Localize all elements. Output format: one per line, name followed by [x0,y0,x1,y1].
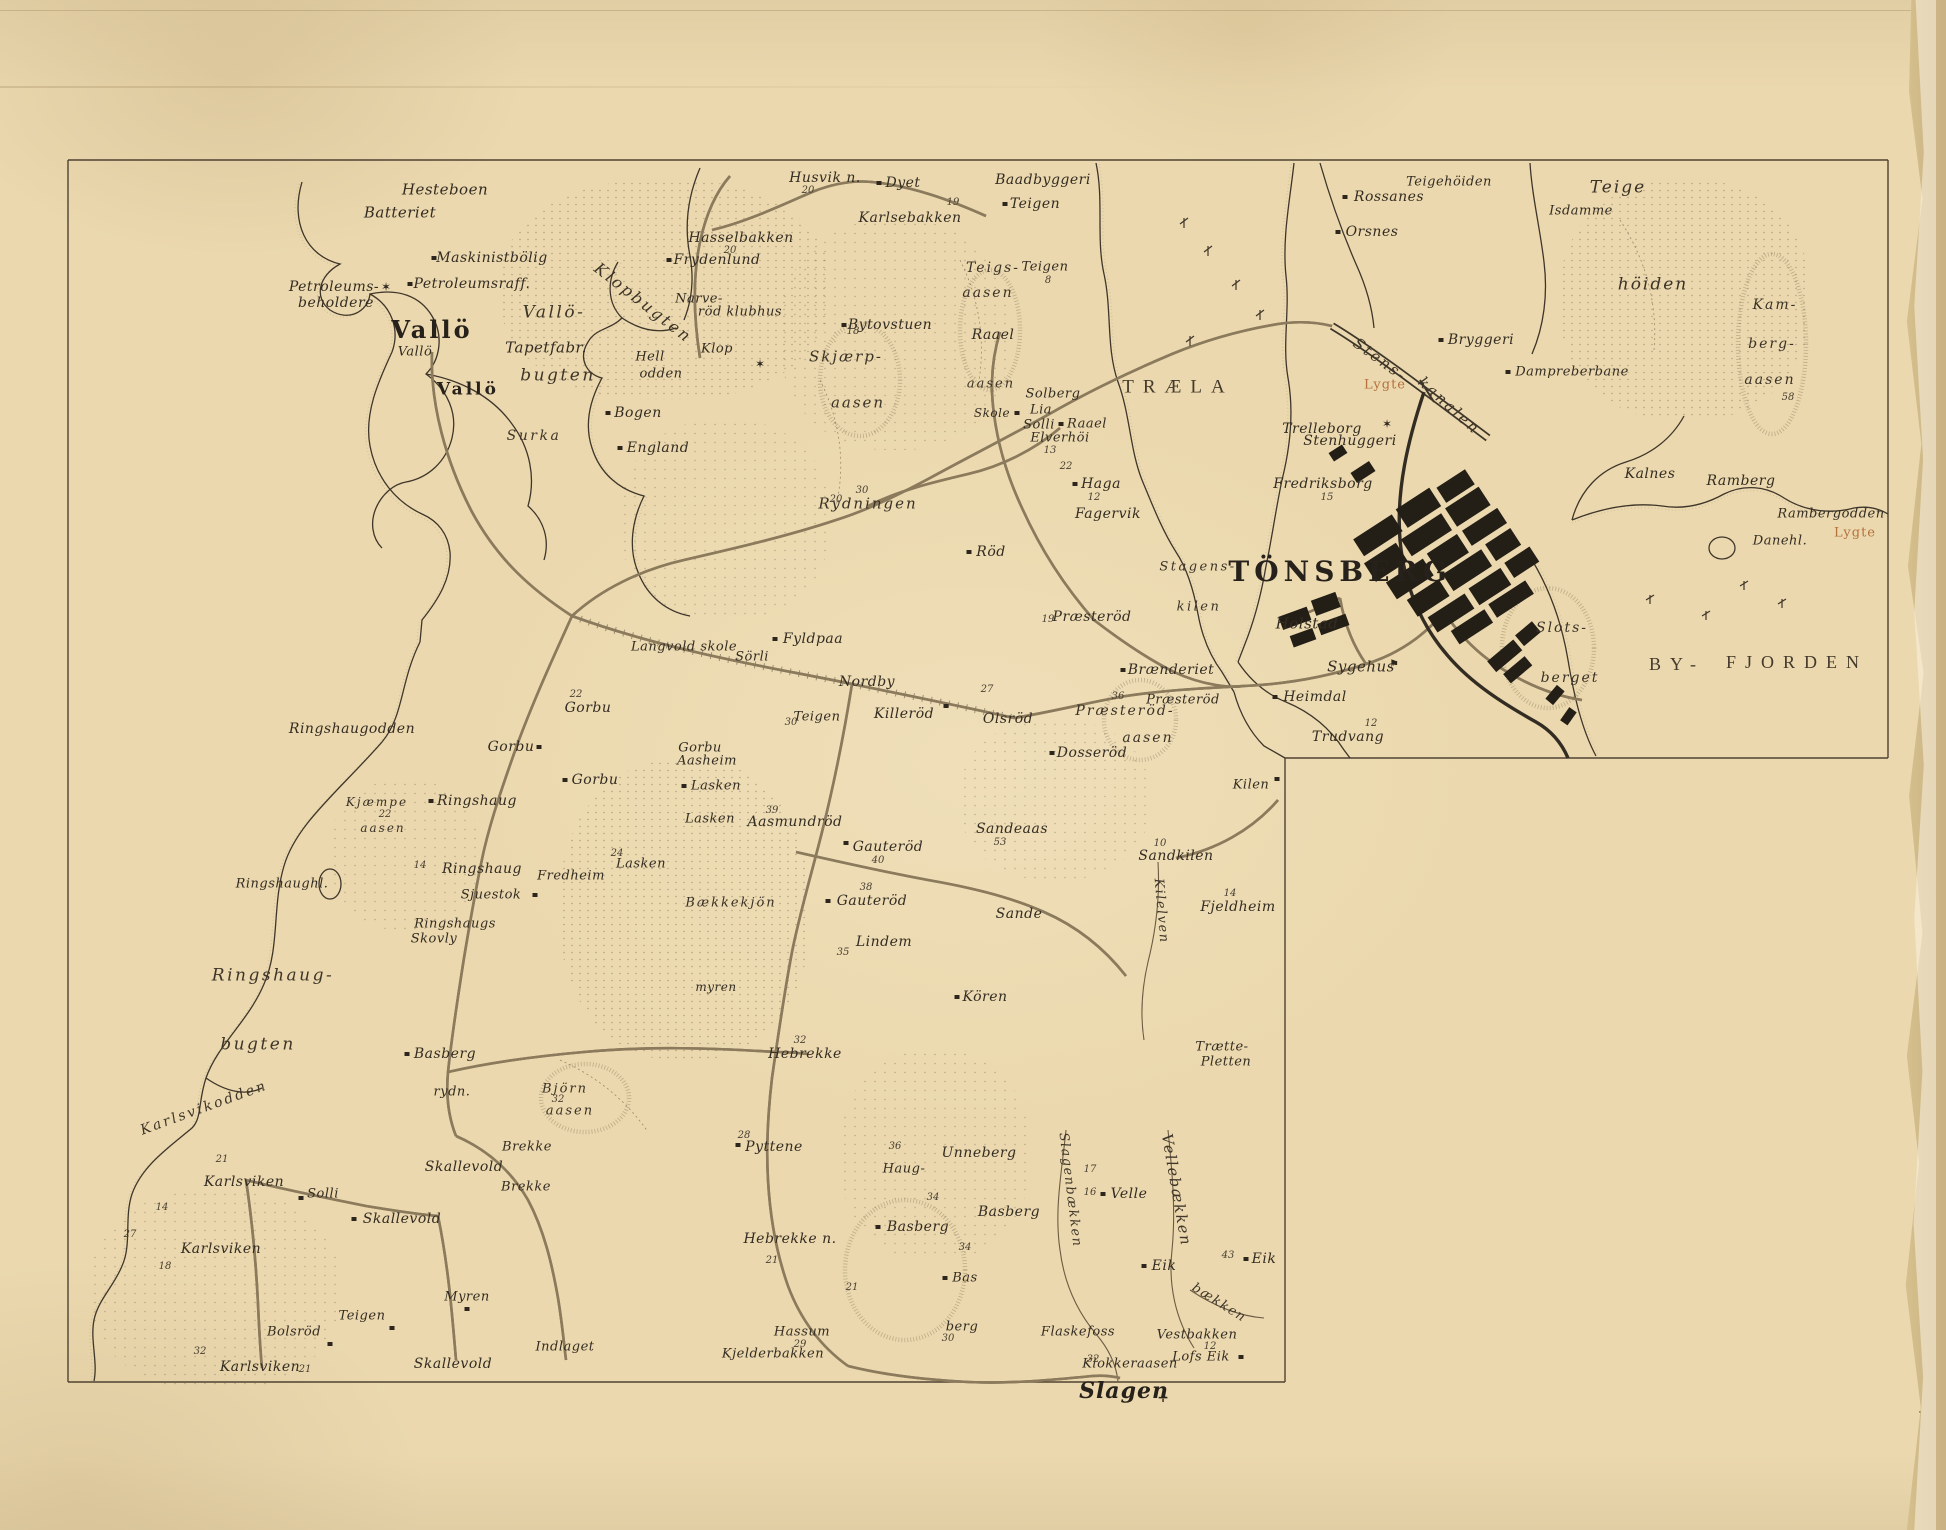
map-label: 10 [1154,839,1167,849]
building-symbol [429,799,434,803]
building-symbol [736,1143,741,1147]
building-symbol [390,1326,395,1330]
map-label: Ringshaug- [212,968,334,985]
map-label: Aasheim [677,755,737,768]
building-symbol [1142,1264,1147,1268]
map-label: Trudvang [1312,730,1384,744]
map-label: myren [695,981,736,993]
map-label: 36 [1112,692,1125,702]
map-label: aasen [831,396,885,411]
map-label: Ramberg [1707,474,1776,488]
map-label: aasen [1744,373,1795,387]
map-label: 12 [1088,493,1101,503]
map-label: FJORDEN [1726,653,1868,671]
building-symbol [1059,422,1064,426]
building-symbol [876,1225,881,1229]
building-symbol [955,995,960,999]
building-symbol [943,1276,948,1280]
map-label: ✶ [755,358,765,370]
map-label: 27 [981,685,994,695]
map-label: Bolsröd [267,1326,321,1339]
map-label: aasen [962,286,1013,300]
map-label: Batteriet [364,206,436,221]
map-label: Ringshaug [442,862,522,876]
map-label: Hassum [774,1326,830,1339]
map-label: aasen [360,822,405,834]
map-label: 21 [846,1283,859,1293]
map-label: ✶ [381,281,391,293]
map-label: Vallö [391,318,472,342]
building-symbol [352,1217,357,1221]
map-label: 32 [1087,1355,1100,1365]
map-label: berg- [1748,337,1796,351]
map-label: bugten [220,1037,296,1054]
map-label: 27 [124,1230,137,1240]
map-label: Langvold skole [631,641,737,654]
map-label: Ringshaugodden [289,722,415,736]
map-label: Bytovstuen [848,318,932,332]
map-label: Orsnes [1346,225,1399,239]
building-symbol [533,893,538,897]
map-label: Trætte- [1195,1041,1248,1054]
map-label: 34 [959,1243,972,1253]
map-label: Killeröd [874,707,934,721]
building-symbol [1015,411,1020,415]
map-label: Sygehus [1327,660,1395,675]
map-label: Ringshaughl. [236,878,329,891]
map-label: Lindem [856,935,912,949]
map-label: Björn [542,1083,588,1096]
map-label: Husvik n. [789,171,861,185]
building-symbol [682,784,687,788]
map-label: Karlsviken [220,1360,300,1374]
map-label: Haga [1081,477,1121,491]
map-label: Kam- [1753,298,1798,312]
map-label: beholdere [298,296,374,310]
map-label: Hesteboen [402,183,488,198]
map-label: Skallevold [414,1357,492,1371]
building-symbol [844,841,849,845]
map-label: 21 [216,1155,229,1165]
map-label: Bas [952,1272,977,1285]
map-label: Fredriksborg [1273,477,1373,491]
map-label: rydn. [434,1086,471,1099]
building-symbol [606,411,611,415]
map-label: Skovly [411,933,457,946]
building-symbol [1273,695,1278,699]
map-label: Fagervik [1075,507,1141,521]
map-label: Præsteröd- [1075,704,1174,718]
map-label: 14 [414,861,427,871]
building-symbol [773,637,778,641]
map-frame [68,160,1888,1382]
building-symbol [465,1307,470,1311]
map-label: Myren [444,1291,489,1304]
map-label: Teige [1590,180,1646,197]
map-label: Sandkilen [1138,849,1213,863]
map-label: ⚑ [1389,659,1399,670]
map-label: Flaskefoss [1041,1326,1115,1339]
map-label: Ringshaugs [414,918,496,931]
coastlines [90,163,1888,1383]
map-label: Sandeaas [976,822,1048,836]
building-symbol [1244,1257,1249,1261]
map-label: Præsteröd [1053,610,1132,624]
map-label: 20 [830,495,843,505]
building-symbol [1343,195,1348,199]
map-label: 18 [847,327,860,337]
map-label: Lasken [616,858,666,871]
building-symbol [563,778,568,782]
map-label: 21 [766,1256,779,1266]
map-label: Teigen [339,1310,386,1323]
map-label: Fyldpaa [783,632,843,646]
map-label: 34 [927,1193,940,1203]
map-label: Vallö [398,346,433,359]
map-label: Isdamme [1549,205,1613,218]
map-label: Nordby [839,675,895,689]
map-label: Klop [701,343,733,356]
map-label: Bryggeri [1448,333,1514,347]
map-label: 16 [1084,1188,1097,1198]
map-label: Stagens- [1159,561,1236,574]
map-label: Indlaget [536,1341,595,1354]
map-label: 22 [570,690,583,700]
map-label: Gorbu [565,701,612,715]
map-label: Gauteröd [853,840,924,854]
map-label: Karlsviken [204,1175,284,1189]
map-label: 53 [994,838,1007,848]
map-label: Kilen [1233,779,1270,792]
map-label: röd klubhus [698,306,782,319]
map-label: Hasselbakken [688,231,793,245]
building-symbol [877,181,882,185]
map-label: Teigen [794,711,841,724]
map-label: TÖNSBERG [1228,558,1451,586]
building-symbol [537,745,542,749]
map-label: Kjelderbakken [722,1348,824,1361]
map-label: Petroleumsraff. [414,277,531,291]
map-label: Skallevold [363,1212,441,1226]
building-symbol [1003,202,1008,206]
map-label: Petroleums- [289,280,379,294]
map-label: Brekke [501,1181,551,1194]
map-label: Fredheim [537,870,605,883]
map-label: 43 [1222,1251,1235,1261]
building-symbol [1101,1192,1106,1196]
map-label: Eik [1252,1252,1277,1266]
map-label: 20 [724,246,737,256]
map-label: BY- [1649,655,1705,673]
map-label: Sande [996,907,1043,921]
map-label: Pyttene [745,1140,803,1154]
map-label: Skjærp- [809,350,883,365]
map-label: Maskinistbölig [436,251,547,265]
map-label: Baadbyggeri [995,173,1091,187]
map-label: aasen [967,378,1015,391]
map-label: Teigs- [966,261,1020,275]
map-label: odden [639,368,682,381]
map-label: 20 [802,186,815,196]
map-label: Teigen [1010,197,1060,211]
building-symbol [1336,230,1341,234]
map-label: Vestbakken [1157,1329,1238,1342]
map-label: 36 [889,1142,902,1152]
building-symbol [299,1196,304,1200]
map-label: Lygte [1834,527,1876,540]
map-label: 30 [942,1334,955,1344]
map-label: aasen [1122,731,1173,745]
building-symbol [1439,338,1444,342]
map-label: Solli [307,1188,339,1201]
map-label: Lygte [1364,379,1406,392]
map-label: Raael [972,328,1015,342]
map-label: Lia [1030,404,1052,417]
map-label: 19 [1042,615,1055,625]
map-label: 18 [159,1262,172,1272]
map-label: Dyet [885,176,920,190]
map-label: Fjeldheim [1200,900,1275,914]
map-label: Vallö- [523,305,586,322]
map-label: Pletten [1201,1056,1252,1069]
map-label: 24 [611,849,624,859]
map-label: 13 [1044,446,1057,456]
map-label: Raael [1067,418,1107,431]
map-label: kilen [1177,601,1222,614]
map-sheet: HesteboenBatterietMaskinistböligPetroleu… [0,0,1946,1530]
map-label: Unneberg [941,1146,1016,1160]
map-label: Gorbu [488,740,535,754]
map-label: TRÆLA [1122,378,1234,397]
map-label: Tapetfabr. [505,341,587,356]
building-symbol [328,1342,333,1346]
map-label: Aasmundröd [748,815,843,829]
map-label: Röd [976,545,1005,559]
map-label: Slagen [1079,1380,1169,1402]
map-label: Gauteröd [837,894,908,908]
map-label: 12 [1365,719,1378,729]
map-label: Dosseröd [1057,746,1127,760]
map-label: England [627,441,690,455]
map-label: Frydenlund [673,253,760,267]
map-label: Sörli [735,651,769,664]
map-label: Dampreberbane [1515,366,1629,379]
map-label: Heimdal [1283,690,1347,704]
map-label: 14 [1224,889,1237,899]
map-label: Karlsebakken [858,211,961,225]
map-label: 40 [872,856,885,866]
map-label: Kören [962,990,1007,1004]
map-label: Bækkekjön [685,897,776,910]
building-symbol [1073,482,1078,486]
map-label: Teigehöiden [1406,176,1492,189]
map-label: Velle [1111,1187,1148,1201]
map-label: ✛ [1158,1392,1168,1404]
map-artwork [0,0,1946,1530]
map-label: 30 [785,718,798,728]
map-label: 8 [1045,276,1051,286]
map-label: 14 [156,1203,169,1213]
map-label: Rambergodden [1777,508,1884,521]
map-label: 39 [766,806,779,816]
map-label: 21 [299,1365,312,1375]
map-label: Slots- [1536,621,1588,635]
building-symbol [944,704,949,708]
map-label: Vallö [437,382,499,399]
map-label: 32 [794,1036,807,1046]
map-label: 28 [738,1131,751,1141]
map-label: Stenhuggeri [1303,434,1396,448]
building-symbol [967,550,972,554]
map-label: Basberg [978,1205,1040,1219]
map-label: 15 [1321,493,1334,503]
building-symbol [1121,668,1126,672]
map-label: Teigen [1022,261,1069,274]
map-label: Hell [635,351,664,364]
map-label: Solberg [1026,388,1081,401]
map-label: Lasken [691,780,741,793]
map-label: 22 [1060,462,1073,472]
building-symbol [826,899,831,903]
map-label: Danehl. [1753,535,1807,548]
streams [560,220,1655,1381]
map-label: Rossanes [1354,190,1424,204]
map-label: Holstad [1276,617,1339,632]
building-symbol [408,282,413,286]
map-label: Lofs Eik [1172,1351,1230,1364]
map-label: 35 [837,948,850,958]
map-label: Olsröd [983,712,1033,726]
building-symbol [667,258,672,262]
map-label: 22 [379,810,392,820]
map-label: Eik [1152,1259,1177,1273]
map-label: Bogen [614,406,661,420]
map-label: berg [946,1321,979,1334]
map-label: Brekke [502,1141,552,1154]
map-label: Hebrekke n. [743,1232,836,1246]
map-label: bugten [520,368,596,385]
building-symbol [1275,777,1280,781]
map-label: Basberg [887,1220,949,1234]
map-label: Elverhöi [1030,432,1089,445]
map-label: 17 [1084,1165,1097,1175]
map-label: Skallevold [425,1160,503,1174]
building-symbol [1506,370,1511,374]
map-label: berget [1541,671,1600,685]
map-label: 32 [194,1347,207,1357]
building-symbol [405,1052,410,1056]
map-label: Ringshaug [437,794,517,808]
map-label: aasen [546,1105,594,1118]
map-label: Hebrekke [768,1047,842,1061]
map-label: Sjuestok [461,889,522,902]
building-symbol [1050,751,1055,755]
building-symbol [618,446,623,450]
map-label: Brænderiet [1128,663,1214,677]
map-label: Gorbu [572,773,619,787]
map-label: höiden [1618,277,1689,294]
map-label: Surka [507,429,562,443]
map-label: 30 [856,486,869,496]
map-label: 19 [947,198,960,208]
map-label: 58 [1782,393,1795,403]
map-label: Kalnes [1625,467,1676,481]
map-label: ✶ [1382,418,1392,430]
building-symbol [1239,1355,1244,1359]
map-label: Skole [974,407,1010,419]
map-label: Karlsviken [181,1242,261,1256]
map-label: 38 [860,883,873,893]
map-label: Kjæmpe [346,796,408,808]
map-label: Basberg [414,1047,476,1061]
map-label: Haug- [883,1163,926,1176]
map-label: Lasken [685,813,735,826]
building-symbol [432,256,437,260]
